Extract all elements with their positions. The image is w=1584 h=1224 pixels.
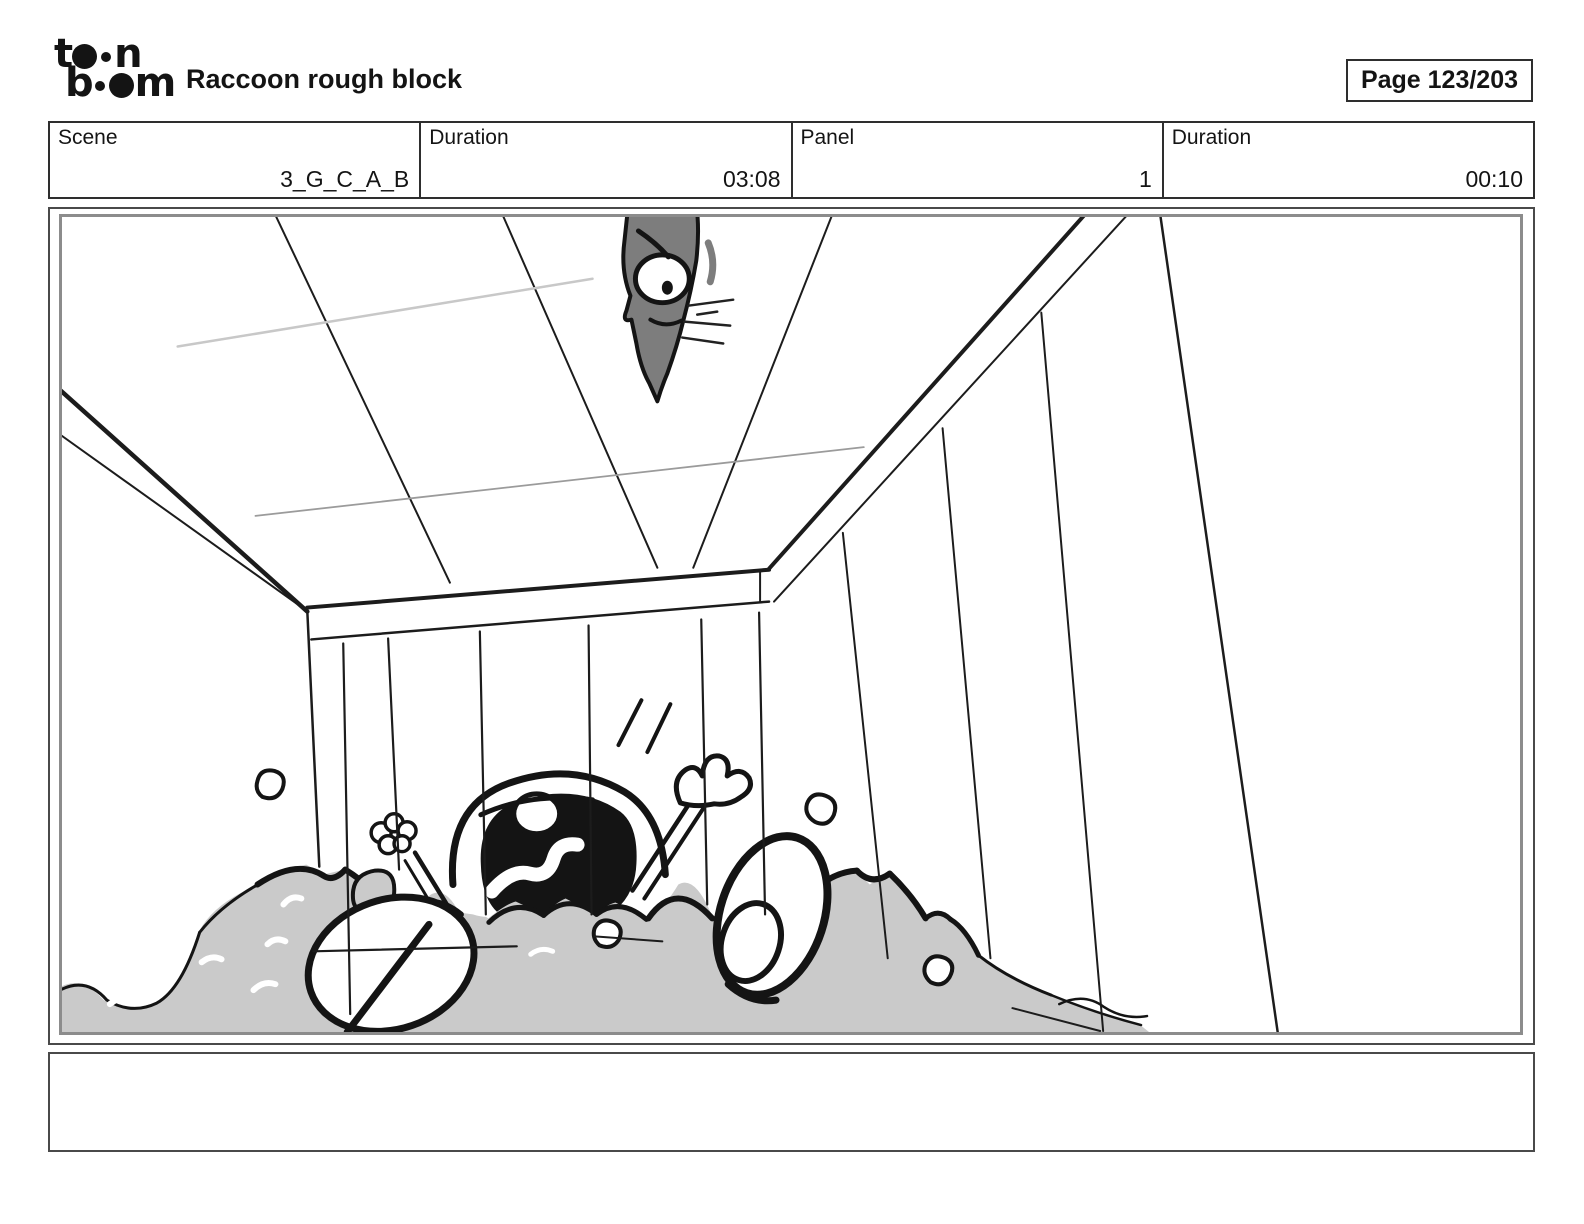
scratch-marks [682, 300, 733, 344]
panel-number-label: Panel [801, 126, 855, 150]
left-hand [371, 814, 416, 854]
scene-cell: Scene 3_G_C_A_B [50, 123, 421, 197]
panel-number-value: 1 [1139, 166, 1152, 193]
peeking-figure-eye [635, 255, 689, 303]
logo-letter-b: b [65, 67, 92, 100]
peeking-figure-pupil [662, 281, 673, 295]
logo-dot-icon [95, 81, 105, 91]
storyboard-page: t n b m Raccoon rough block Page 123/203… [0, 0, 1584, 1224]
scene-value: 3_G_C_A_B [280, 166, 409, 193]
toon-boom-logo: t n b m [54, 40, 174, 102]
panel-duration-value: 00:10 [1465, 166, 1523, 193]
fluff-bean-highlight [924, 956, 952, 984]
panel-duration-label: Duration [1172, 126, 1251, 150]
scene-duration-value: 03:08 [723, 166, 781, 193]
motion-strokes [618, 700, 670, 752]
storyboard-panel-inner-frame [59, 214, 1523, 1035]
logo-dot-icon [101, 52, 111, 62]
scene-duration-cell: Duration 03:08 [421, 123, 792, 197]
page-indicator: Page 123/203 [1346, 59, 1533, 102]
panel-duration-cell: Duration 00:10 [1164, 123, 1533, 197]
storyboard-panel-frame [48, 207, 1535, 1045]
peeking-figure-body [623, 217, 698, 401]
peeking-figure [623, 217, 733, 401]
panel-number-cell: Panel 1 [793, 123, 1164, 197]
right-hand [676, 756, 750, 806]
scene-duration-label: Duration [429, 126, 508, 150]
logo-letter-m: m [135, 67, 175, 100]
project-title: Raccoon rough block [186, 64, 462, 95]
storyboard-drawing [62, 217, 1520, 1032]
scene-label: Scene [58, 126, 118, 150]
caption-box [48, 1052, 1535, 1152]
fluff-front [479, 898, 661, 1032]
panel-info-table: Scene 3_G_C_A_B Duration 03:08 Panel 1 D… [48, 121, 1535, 199]
